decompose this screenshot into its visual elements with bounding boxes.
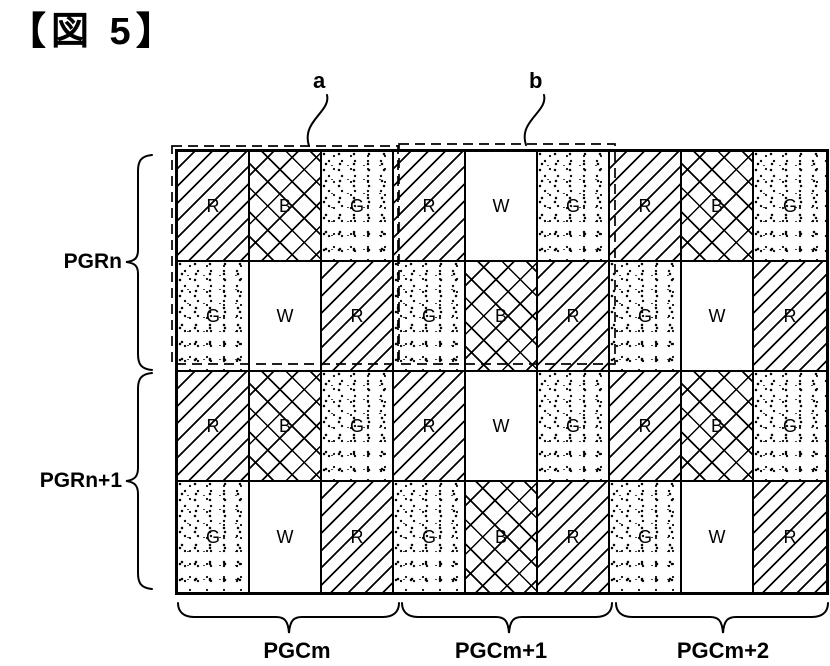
pixel-cell-r1c9: G — [754, 152, 826, 262]
pixel-cell-r3c8: B — [682, 372, 754, 482]
pixel-cell-letter: G — [206, 528, 220, 546]
pixel-cell-r3c3: G — [322, 372, 394, 482]
subpixel-grid: RBGRWGRBGGWRGBRGWRRBGRWGRBGGWRGBRGWR — [175, 149, 829, 595]
pixel-cell-letter: R — [207, 197, 220, 215]
patent-figure-page: 【図 5】 a b PGRn PGRn+1 PGCm PGCm+1 PGCm+2… — [0, 0, 830, 666]
brace-pgrn+1 — [126, 373, 152, 589]
pixel-cell-r1c4: R — [394, 152, 466, 262]
pixel-cell-letter: G — [422, 528, 436, 546]
pixel-cell-letter: R — [351, 528, 364, 546]
pixel-cell-letter: R — [351, 307, 364, 325]
pixel-cell-r2c3: R — [322, 262, 394, 372]
region-label-a: a — [313, 68, 325, 94]
pixel-cell-letter: G — [350, 197, 364, 215]
pixel-cell-letter: W — [709, 528, 726, 546]
pixel-cell-r2c6: R — [538, 262, 610, 372]
col-group-label-pgcm: PGCm — [232, 638, 362, 664]
brace-pgcm+2 — [616, 603, 828, 633]
pixel-cell-letter: G — [422, 307, 436, 325]
brace-pgrn — [126, 155, 152, 370]
pixel-cell-letter: W — [493, 417, 510, 435]
row-group-label-pgrn+1: PGRn+1 — [22, 469, 122, 493]
col-group-label-pgcm+1: PGCm+1 — [436, 638, 566, 664]
pixel-cell-r1c6: G — [538, 152, 610, 262]
pixel-cell-r4c9: R — [754, 482, 826, 592]
pixel-cell-letter: R — [207, 417, 220, 435]
pixel-cell-r1c7: R — [610, 152, 682, 262]
pixel-cell-letter: G — [350, 417, 364, 435]
pixel-cell-letter: G — [566, 417, 580, 435]
pixel-cell-r1c8: B — [682, 152, 754, 262]
pixel-cell-letter: B — [495, 307, 507, 325]
leader-line-b — [525, 95, 545, 145]
pixel-cell-r3c6: G — [538, 372, 610, 482]
brace-pgcm — [178, 603, 399, 633]
pixel-cell-letter: W — [277, 528, 294, 546]
pixel-cell-letter: G — [783, 417, 797, 435]
pixel-cell-letter: R — [423, 197, 436, 215]
figure-title: 【図 5】 — [8, 0, 179, 55]
pixel-cell-r1c2: B — [250, 152, 322, 262]
pixel-cell-r4c1: G — [178, 482, 250, 592]
pixel-cell-letter: W — [277, 307, 294, 325]
pixel-cell-r3c2: B — [250, 372, 322, 482]
pixel-cell-r4c4: G — [394, 482, 466, 592]
pixel-cell-letter: G — [783, 197, 797, 215]
pixel-cell-r4c3: R — [322, 482, 394, 592]
pixel-cell-letter: R — [567, 307, 580, 325]
pixel-cell-r2c1: G — [178, 262, 250, 372]
pixel-cell-letter: W — [709, 307, 726, 325]
leader-line-a — [308, 95, 328, 146]
brace-pgcm+1 — [402, 603, 612, 633]
pixel-cell-r2c5: B — [466, 262, 538, 372]
pixel-cell-letter: G — [638, 528, 652, 546]
pixel-cell-letter: G — [206, 307, 220, 325]
pixel-cell-r4c7: G — [610, 482, 682, 592]
pixel-cell-letter: R — [423, 417, 436, 435]
pixel-cell-letter: B — [711, 197, 723, 215]
pixel-cell-r2c2: W — [250, 262, 322, 372]
pixel-cell-letter: B — [279, 417, 291, 435]
pixel-cell-letter: R — [784, 307, 797, 325]
pixel-cell-r4c8: W — [682, 482, 754, 592]
pixel-cell-letter: G — [638, 307, 652, 325]
pixel-cell-r4c5: B — [466, 482, 538, 592]
pixel-cell-r3c7: R — [610, 372, 682, 482]
pixel-cell-letter: W — [493, 197, 510, 215]
pixel-cell-letter: R — [639, 417, 652, 435]
pixel-cell-r2c9: R — [754, 262, 826, 372]
pixel-cell-letter: R — [567, 528, 580, 546]
pixel-cell-r4c6: R — [538, 482, 610, 592]
pixel-cell-r2c4: G — [394, 262, 466, 372]
pixel-cell-r1c3: G — [322, 152, 394, 262]
pixel-cell-letter: B — [279, 197, 291, 215]
pixel-cell-r3c5: W — [466, 372, 538, 482]
pixel-cell-r3c9: G — [754, 372, 826, 482]
pixel-cell-r3c1: R — [178, 372, 250, 482]
pixel-cell-letter: B — [711, 417, 723, 435]
pixel-cell-letter: R — [639, 197, 652, 215]
pixel-cell-r2c7: G — [610, 262, 682, 372]
pixel-cell-r1c1: R — [178, 152, 250, 262]
pixel-cell-r2c8: W — [682, 262, 754, 372]
pixel-cell-r1c5: W — [466, 152, 538, 262]
pixel-cell-letter: R — [784, 528, 797, 546]
pixel-cell-letter: G — [566, 197, 580, 215]
region-label-b: b — [529, 68, 542, 94]
row-group-label-pgrn: PGRn — [30, 250, 122, 274]
pixel-cell-r3c4: R — [394, 372, 466, 482]
pixel-cell-r4c2: W — [250, 482, 322, 592]
pixel-cell-letter: B — [495, 528, 507, 546]
col-group-label-pgcm+2: PGCm+2 — [658, 638, 788, 664]
